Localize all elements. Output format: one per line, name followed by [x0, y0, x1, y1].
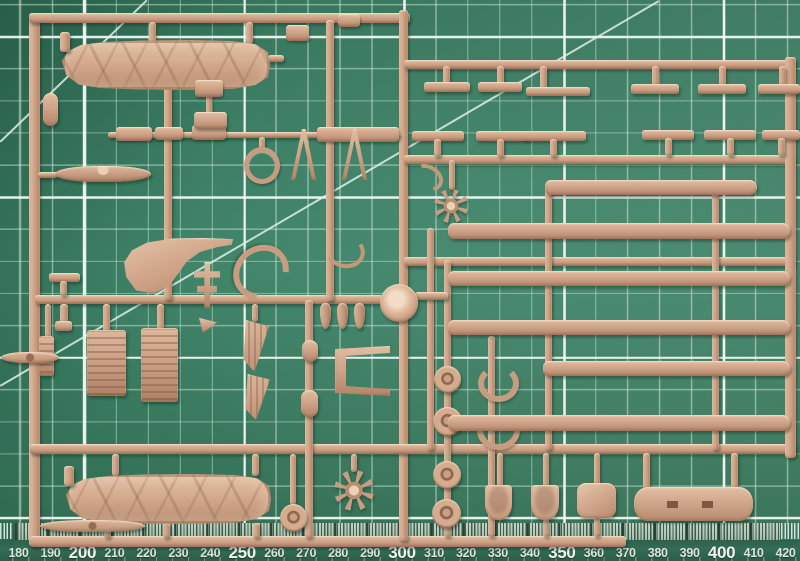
sprue-runner-gate-seat-1b	[543, 519, 549, 537]
sprue-runner-gate-fus-bot-2	[252, 454, 259, 476]
ruler-number-320: 320	[456, 546, 476, 560]
sprue-part-radial-engine-1	[434, 189, 468, 223]
sprue-runner-gate-fus-bot-1	[112, 454, 119, 476]
sprue-part-pour-disc-center	[380, 284, 418, 322]
sprue-part-panel-small-b	[155, 127, 183, 140]
sprue-runner-gate-fus-top-2	[246, 22, 253, 44]
ruler-number-180: 180	[9, 546, 29, 560]
sprue-part-seat-2	[531, 485, 559, 520]
sprue-part-cowl-c-1	[478, 365, 519, 402]
sprue-runner-right-runner-3	[404, 257, 795, 266]
sprue-runner-hangT-foot-5	[698, 84, 746, 94]
sprue-runner-standT-stem-2	[497, 139, 504, 157]
ruler-number-230: 230	[168, 546, 188, 560]
sprue-runner-stub-fus-nose	[268, 55, 284, 62]
sprue-runner-hangT-foot-1	[424, 82, 470, 92]
sprue-part-wheel-disc-spiral	[280, 504, 307, 532]
ruler-number-220: 220	[136, 546, 156, 560]
sprue-runner-gate-fus-bot-3	[163, 523, 170, 538]
ruler-number-260: 260	[264, 546, 284, 560]
sprue-part-pad-square	[577, 483, 616, 518]
sprue-runner-gate-bigpanel-2	[731, 453, 738, 489]
sprue-runner-gate-engine-1	[449, 160, 455, 190]
ruler-number-360: 360	[584, 546, 604, 560]
ruler-number-240: 240	[200, 546, 220, 560]
sprue-part-bracket-top-a	[286, 25, 309, 41]
sprue-runner-gate-radiator-3	[45, 304, 51, 338]
sprue-part-fuselage-half-top	[62, 40, 270, 90]
ruler-number-420: 420	[776, 546, 796, 560]
sprue-part-blade-left-edge	[1, 352, 59, 363]
ruler-number-190: 190	[40, 546, 60, 560]
sprue-part-float-long-3	[448, 271, 790, 286]
sprue-runner-gate-seat-2	[543, 453, 549, 487]
sprue-runner-bar-disc-right	[415, 292, 448, 300]
sprue-runner-hangT-stem-4	[652, 66, 659, 86]
ruler-number-400: 400	[708, 543, 735, 561]
sprue-part-wheel-3	[433, 461, 461, 489]
ruler-number-410: 410	[744, 546, 764, 560]
sprue-part-panel-nose-lower	[194, 112, 227, 129]
sprue-runner-left-vertical-3	[305, 300, 313, 538]
sprue-part-tail-tab-bottom	[64, 466, 74, 486]
sprue-runner-hangT-foot-3	[526, 87, 590, 96]
sprue-part-seat-1	[485, 485, 512, 520]
sprue-runner-gate-wheel-disc	[290, 454, 296, 505]
sprue-part-float-long-1	[545, 180, 757, 195]
ruler-number-210: 210	[104, 546, 124, 560]
sprue-part-panel-small-a	[116, 127, 152, 141]
cutting-mat: 1801902002102202302402502602702802903003…	[0, 0, 800, 561]
sprue-runner-gate-radiator-1	[103, 304, 110, 332]
sprue-runner-stand-stem-mid	[60, 281, 67, 296]
ruler-number-270: 270	[296, 546, 316, 560]
ruler-edge-ticks-right	[781, 523, 800, 539]
sprue-runner-center-vertical	[399, 10, 408, 541]
sprue-runner-wheels-vertical	[444, 260, 451, 537]
ruler-number-370: 370	[616, 546, 636, 560]
ruler-number-340: 340	[520, 546, 540, 560]
sprue-part-float-long-5	[543, 361, 790, 376]
sprue-part-float-long-2	[448, 223, 790, 239]
sprue-runner-standT-stem-1	[434, 139, 441, 157]
sprue-part-stabilizer	[55, 166, 151, 182]
sprue-runner-standT-stem-6	[778, 138, 785, 156]
sprue-part-wheel-4	[432, 499, 461, 528]
ruler-edge-ticks-left	[0, 523, 13, 539]
sprue-runner-hangT-stem-6	[779, 66, 786, 86]
sprue-part-bracket-top-b	[338, 14, 360, 27]
sprue-part-float-long-6	[448, 415, 790, 431]
sprue-runner-standT-stem-3	[550, 139, 557, 157]
sprue-runner-gate-triangle	[252, 304, 258, 322]
ruler-number-380: 380	[648, 546, 668, 560]
sprue-part-panel-nose-upper	[195, 80, 223, 97]
ruler-number-310: 310	[424, 546, 444, 560]
sprue-runner-gate-radiator-2	[157, 304, 164, 330]
sprue-runner-standT-stem-4	[665, 138, 672, 156]
sprue-runner-gate-fus-bot-4	[253, 523, 260, 538]
sprue-part-cylinder-1	[302, 340, 318, 362]
photo-of-model-sprue-on-cutting-mat: 1801902002102202302402502602702802903003…	[0, 0, 800, 561]
sprue-runner-right-runner-2	[404, 155, 795, 164]
ruler-number-330: 330	[488, 546, 508, 560]
sprue-part-radial-engine-2	[334, 470, 374, 511]
sprue-part-propeller-two-blade	[40, 520, 145, 532]
sprue-runner-frame-right	[785, 57, 796, 458]
sprue-runner-hang-blob-mid	[55, 321, 72, 331]
sprue-part-tail-tab-top	[60, 32, 70, 52]
sprue-runner-gate-bigpanel-1	[643, 453, 650, 489]
sprue-part-float-long-4	[448, 320, 790, 335]
sprue-runner-right-runner-1	[404, 60, 795, 69]
sprue-part-cylinder-2	[301, 390, 318, 417]
sprue-runner-hangT-stem-5	[719, 66, 726, 86]
ruler-number-390: 390	[680, 546, 700, 560]
sprue-runner-gate-seat-1	[497, 453, 503, 487]
ruler-number-290: 290	[360, 546, 380, 560]
sprue-runner-hangT-foot-6	[758, 84, 800, 94]
sprue-part-wheel-1	[434, 366, 461, 393]
sprue-runner-full-runner-4	[30, 444, 796, 454]
sprue-runner-hangT-foot-2	[478, 82, 522, 92]
sprue-runner-frame-left	[29, 14, 40, 546]
sprue-part-pill-left-frame	[43, 93, 58, 126]
sprue-runner-gate-pad-b	[594, 517, 600, 537]
sprue-part-radiator-1	[87, 330, 126, 396]
sprue-part-ring-part	[244, 147, 280, 184]
sprue-part-wing-center-panel	[634, 487, 753, 521]
sprue-runner-gate-pad	[594, 453, 600, 485]
sprue-runner-standT-stem-5	[727, 138, 734, 156]
sprue-part-fuselage-half-bottom	[66, 474, 271, 524]
sprue-runner-hangT-foot-4	[631, 84, 679, 94]
ruler-number-280: 280	[328, 546, 348, 560]
sprue-runner-frame-bottom	[30, 536, 626, 547]
sprue-part-radiator-2	[141, 328, 178, 402]
